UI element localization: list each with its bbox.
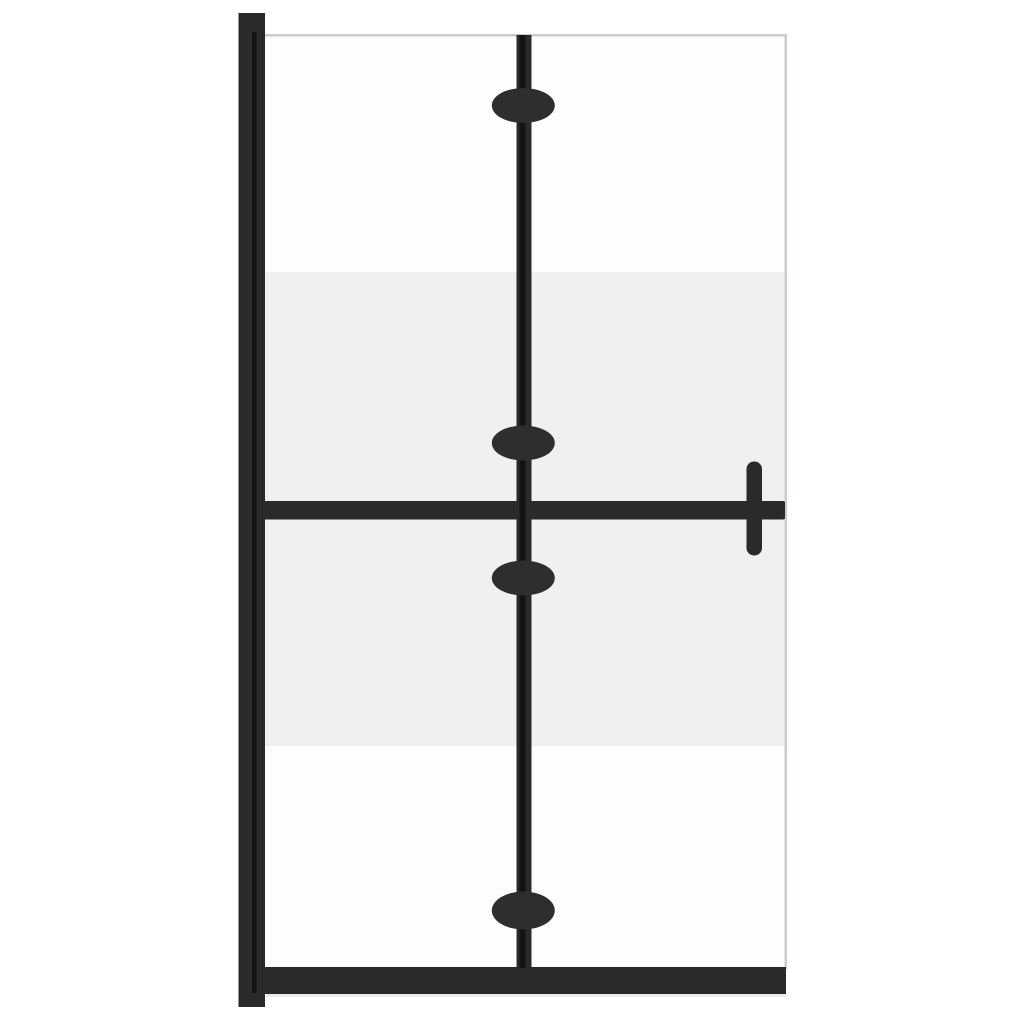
bottom-rail-shadow: [266, 994, 786, 998]
hinge-knob-top: [492, 88, 555, 123]
hinge-knob-upper-middle: [492, 426, 555, 461]
hinge-knob-bottom: [492, 892, 555, 930]
center-hinge-seam: [520, 35, 526, 968]
wall-profile-seam: [252, 32, 257, 993]
glass-right-edge: [785, 34, 788, 969]
wall-profile-bar: [239, 13, 266, 1007]
handle-bar: [747, 462, 763, 556]
hinge-knob-lower-middle: [492, 561, 555, 596]
shower-wall-product-image: [0, 0, 1024, 1024]
bottom-frame-rail: [265, 967, 786, 994]
product-image-stage: [0, 0, 1024, 1024]
